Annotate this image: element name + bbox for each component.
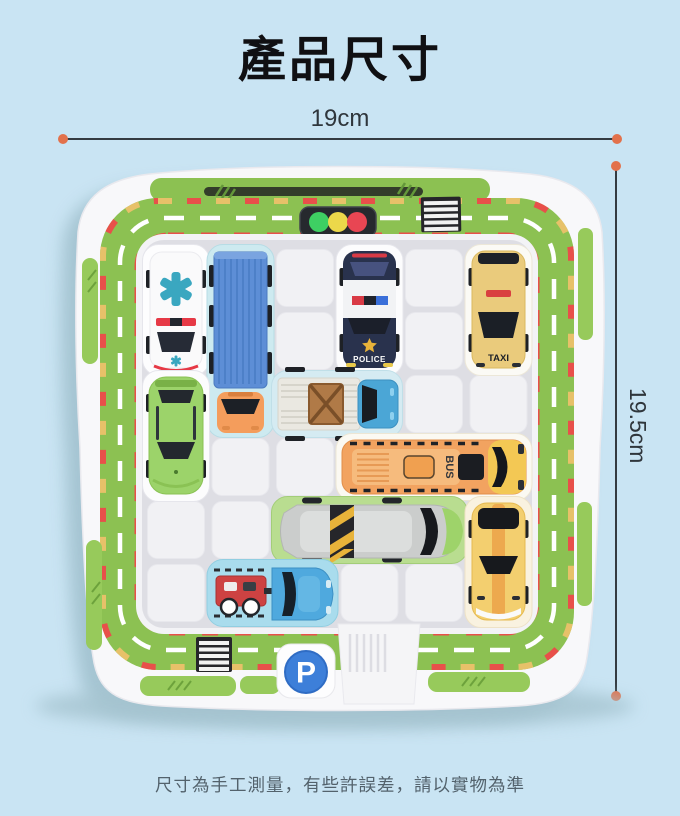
- puzzle-board-photo: POLICE TAXI: [0, 0, 680, 816]
- flatbed-truck-piece: [272, 367, 403, 441]
- parking-cell: [406, 250, 463, 307]
- parking-cell: [406, 565, 463, 622]
- taxi-label: TAXI: [488, 353, 509, 364]
- parking-cell: [148, 565, 205, 622]
- parking-cell: [277, 250, 334, 307]
- police-label: POLICE: [353, 355, 386, 364]
- police-car-piece: POLICE: [336, 245, 403, 376]
- race-car-piece: [272, 497, 468, 565]
- green-sports-car-piece: [143, 371, 210, 502]
- traffic-light-red: [347, 212, 367, 232]
- traffic-light-icon: [300, 207, 376, 237]
- bus-piece: BUS: [336, 434, 532, 501]
- crosswalk-top-icon: [421, 197, 462, 233]
- taxi-piece: TAXI: [465, 245, 532, 376]
- container-truck-piece: [207, 245, 274, 438]
- parking-cell: [470, 376, 527, 433]
- footer-note: 尺寸為手工測量，有些許誤差，請以實物為準: [0, 772, 680, 797]
- parking-cell: [277, 313, 334, 370]
- parking-cell: [212, 502, 269, 559]
- parking-cell: [277, 439, 334, 496]
- bus-label: BUS: [443, 455, 455, 478]
- board-stand-vent: [338, 624, 420, 704]
- car-with-cart-piece: [207, 560, 338, 627]
- product-dimension-page: 產品尺寸 19cm 19.5cm: [0, 0, 680, 816]
- traffic-light-yellow: [328, 212, 348, 232]
- yellow-sports-car-piece: [465, 497, 532, 628]
- truck-cab: [217, 392, 264, 433]
- truck-cab: [358, 380, 398, 428]
- parking-cell: [406, 313, 463, 370]
- parking-cell: [212, 439, 269, 496]
- parking-cell: [148, 502, 205, 559]
- parking-cell: [341, 565, 398, 622]
- hazard-stripe-icon: [330, 505, 354, 564]
- parking-cell: [406, 376, 463, 433]
- traffic-light-green: [309, 212, 329, 232]
- crosswalk-bottom-icon: [196, 637, 232, 672]
- ambulance-piece: [143, 245, 210, 376]
- crate-icon: [309, 384, 343, 424]
- parking-sign-label: P: [296, 657, 316, 690]
- parking-sign: P: [277, 644, 335, 698]
